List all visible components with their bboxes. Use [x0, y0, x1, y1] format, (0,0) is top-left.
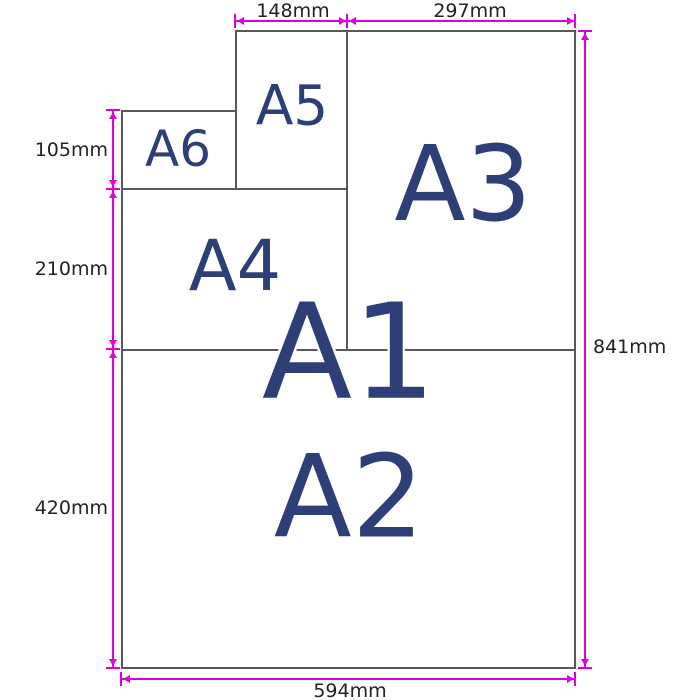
dimension-arrow — [109, 191, 117, 198]
sheet-label-a6: A6 — [145, 124, 211, 174]
dimension-label-a5-width: 148mm — [233, 2, 353, 21]
dimension-line-total-height — [584, 31, 586, 669]
dimension-arrow — [567, 675, 574, 683]
dimension-tick — [574, 672, 576, 686]
dimension-arrow — [109, 340, 117, 347]
dimension-arrow — [109, 351, 117, 358]
dimension-tick — [574, 14, 576, 28]
dimension-arrow — [109, 180, 117, 187]
dimension-label-a4-height: 210mm — [30, 260, 108, 279]
dimension-tick — [106, 109, 120, 111]
sheet-label-a1: A1 — [262, 287, 436, 419]
dimension-tick — [120, 672, 122, 686]
dimension-arrow — [581, 659, 589, 666]
dimension-arrow — [123, 675, 130, 683]
dimension-arrow — [581, 33, 589, 40]
dimension-tick — [578, 667, 592, 669]
dimension-label-total-width: 594mm — [290, 682, 410, 700]
sheet-label-a2: A2 — [274, 440, 425, 554]
dimension-label-a3-width: 297mm — [410, 2, 530, 21]
dimension-tick — [106, 348, 120, 350]
dimension-tick — [106, 188, 120, 190]
dimension-arrow — [567, 17, 574, 25]
dimension-tick — [106, 667, 120, 669]
dimension-label-a6-height: 105mm — [30, 141, 108, 160]
dimension-arrow — [109, 112, 117, 119]
paper-sizes-diagram: 148mm 297mm 105mm 210mm 420mm 841mm 594m… — [0, 0, 700, 700]
dimension-tick — [578, 30, 592, 32]
sheet-label-a5: A5 — [256, 78, 329, 133]
dimension-label-a2-height: 420mm — [30, 499, 108, 518]
dimension-label-total-height: 841mm — [593, 338, 683, 357]
sheet-label-a3: A3 — [394, 132, 531, 236]
dimension-arrow — [109, 659, 117, 666]
